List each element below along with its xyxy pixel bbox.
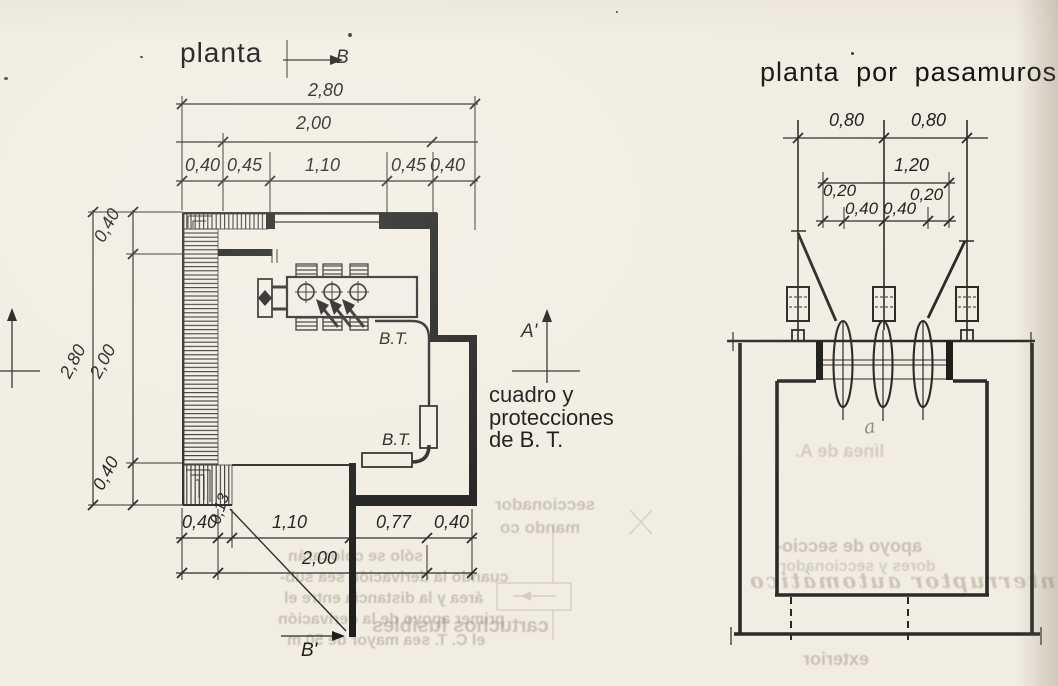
- room-outline: [183, 213, 437, 505]
- paper-speck: [851, 52, 854, 55]
- scanned-technical-drawing-page: sólo se colocarán cuando la derivación s…: [0, 0, 1058, 686]
- arrow-a-prime: [542, 309, 552, 322]
- dim-label: 2,00: [302, 549, 337, 569]
- outer-room-outline: [734, 343, 1040, 634]
- bt-label-upper: B.T.: [379, 330, 409, 349]
- paper-speck: [616, 11, 618, 13]
- annotation-line: protecciones: [489, 407, 614, 429]
- right-plan-title: planta por pasamuros: [760, 57, 1057, 88]
- section-label-a-prime: A': [521, 322, 537, 343]
- wall-stub-below: [349, 463, 356, 637]
- dim-label: 1,10: [272, 513, 307, 533]
- dim-label: 2,80: [308, 81, 343, 101]
- dim-label: 0,40: [845, 200, 878, 219]
- wall-right-lower: [469, 335, 477, 506]
- annotation-line: cuadro y: [489, 384, 573, 406]
- paper-speck: [348, 33, 352, 37]
- cable-conduit: [420, 406, 437, 448]
- arrow-a: [7, 308, 17, 321]
- section-label-b: B: [336, 48, 349, 69]
- section-marker-lines: [0, 60, 580, 636]
- dim-label: 0,80: [911, 111, 946, 131]
- wall-bottom: [352, 495, 477, 506]
- dim-label: 0,40: [185, 156, 220, 176]
- dim-label: 0,40: [430, 156, 465, 176]
- dim-label: 2,00: [296, 114, 331, 134]
- arrow-b-prime: [332, 631, 345, 641]
- cuadro-box: [362, 453, 412, 467]
- annotation-line: de B. T.: [489, 429, 563, 451]
- dim-label: 1,20: [894, 156, 929, 176]
- ghost-circuit: [497, 510, 652, 640]
- wall-interior-bar: [218, 249, 272, 256]
- wall-right-upper: [430, 229, 438, 339]
- conductors: [798, 120, 967, 341]
- wall-hatch-left: [184, 229, 218, 465]
- dim-label: 0,80: [829, 111, 864, 131]
- wall-solid-top-right: [388, 213, 438, 229]
- stay-conductors: [798, 233, 965, 321]
- dim-label: 0,45: [227, 156, 262, 176]
- dim-label: 0,77: [376, 513, 411, 533]
- plan-linework: [0, 0, 1058, 686]
- left-plan-title: planta: [180, 37, 262, 69]
- left-plan-linework: [0, 40, 580, 641]
- dim-label: 0,40: [883, 200, 916, 219]
- paper-speck: [4, 77, 8, 80]
- paper-speck: [140, 56, 143, 58]
- dim-label: 1,10: [305, 156, 340, 176]
- section-label-b-prime: B': [301, 641, 317, 662]
- bt-label-lower: B.T.: [382, 431, 412, 450]
- dim-label: 0,40: [434, 513, 469, 533]
- lintel: [272, 214, 384, 222]
- inner-room-outline: [775, 381, 989, 595]
- dim-label: 0,20: [823, 182, 856, 201]
- dim-label: 0,45: [391, 156, 426, 176]
